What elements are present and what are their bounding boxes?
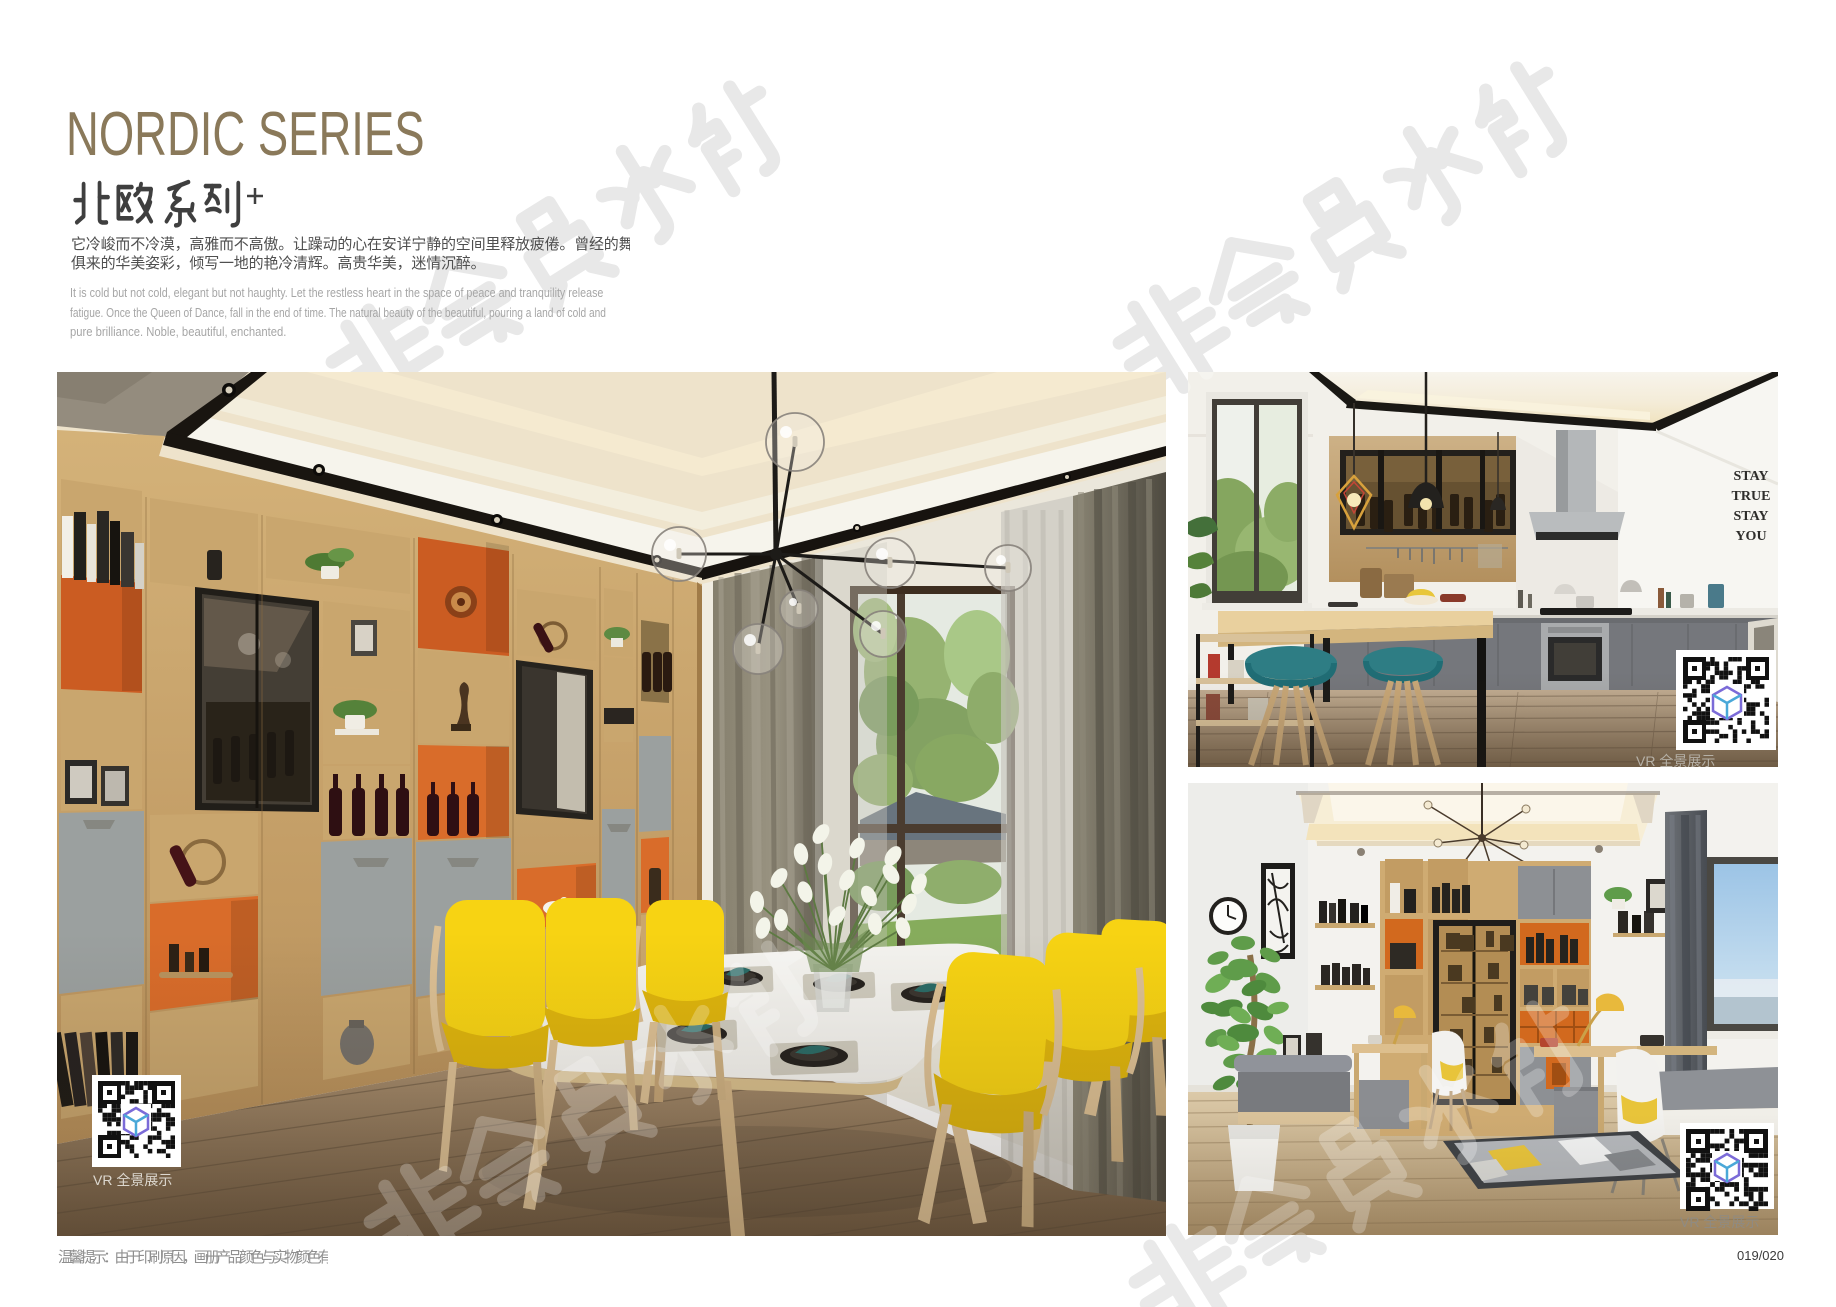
svg-text:VR 全景展示: VR 全景展示: [1636, 753, 1715, 767]
svg-text:STAY: STAY: [1733, 509, 1768, 524]
svg-text:VR 全景展示: VR 全景展示: [1680, 1214, 1759, 1230]
svg-text:STAY: STAY: [1733, 469, 1768, 484]
svg-text:YOU: YOU: [1735, 529, 1766, 544]
svg-text:TRUE: TRUE: [1732, 489, 1771, 504]
svg-text:VR 全景展示: VR 全景展示: [93, 1172, 172, 1188]
